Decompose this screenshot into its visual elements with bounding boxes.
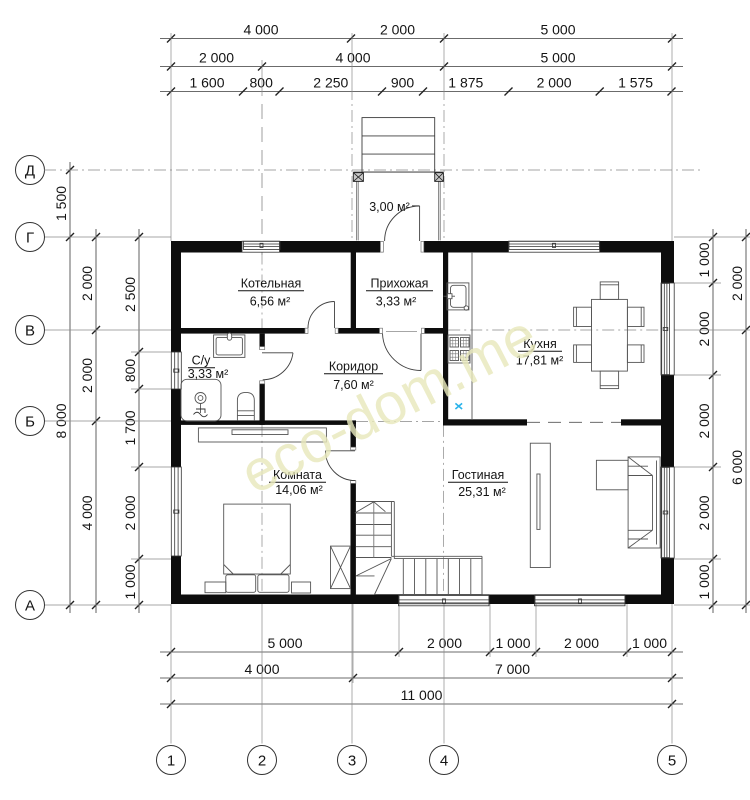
svg-text:1 000: 1 000: [696, 564, 712, 599]
svg-text:1 000: 1 000: [495, 635, 530, 651]
svg-text:2 000: 2 000: [564, 635, 599, 651]
svg-text:1 500: 1 500: [53, 186, 69, 221]
svg-text:Г: Г: [26, 230, 34, 247]
svg-text:1 000: 1 000: [122, 564, 138, 599]
svg-text:1 600: 1 600: [189, 75, 224, 91]
svg-text:С/у: С/у: [192, 354, 212, 368]
svg-text:2 000: 2 000: [696, 403, 712, 438]
svg-text:А: А: [25, 598, 35, 615]
svg-text:3,00 м²: 3,00 м²: [369, 200, 410, 214]
svg-text:4: 4: [440, 753, 448, 770]
svg-text:2 000: 2 000: [696, 311, 712, 346]
svg-text:2: 2: [258, 753, 266, 770]
svg-text:3: 3: [348, 753, 356, 770]
svg-text:1: 1: [167, 753, 175, 770]
svg-text:5 000: 5 000: [267, 635, 302, 651]
svg-text:1 875: 1 875: [448, 75, 483, 91]
svg-text:2 000: 2 000: [199, 50, 234, 66]
svg-text:2 000: 2 000: [729, 266, 745, 301]
svg-text:7 000: 7 000: [495, 661, 530, 677]
svg-text:800: 800: [122, 359, 138, 383]
svg-text:5 000: 5 000: [540, 50, 575, 66]
svg-text:4 000: 4 000: [335, 50, 370, 66]
svg-text:2 250: 2 250: [313, 75, 348, 91]
svg-text:2 500: 2 500: [122, 277, 138, 312]
svg-text:2 000: 2 000: [427, 635, 462, 651]
svg-text:2 000: 2 000: [380, 22, 415, 38]
svg-text:Прихожая: Прихожая: [371, 277, 429, 291]
svg-text:1 000: 1 000: [632, 635, 667, 651]
svg-text:Гостиная: Гостиная: [452, 468, 504, 482]
svg-text:1 000: 1 000: [696, 242, 712, 277]
svg-text:800: 800: [250, 75, 274, 91]
svg-text:6,56 м²: 6,56 м²: [250, 295, 291, 309]
svg-text:5: 5: [668, 753, 676, 770]
svg-text:5 000: 5 000: [540, 22, 575, 38]
svg-text:11 000: 11 000: [401, 687, 443, 703]
svg-text:4 000: 4 000: [79, 495, 95, 530]
svg-text:3,33 м²: 3,33 м²: [376, 295, 417, 309]
svg-text:Коридор: Коридор: [329, 360, 378, 374]
svg-text:В: В: [25, 323, 35, 340]
svg-text:2 000: 2 000: [696, 495, 712, 530]
svg-text:1 575: 1 575: [618, 75, 653, 91]
svg-text:2 000: 2 000: [79, 266, 95, 301]
svg-text:2 000: 2 000: [537, 75, 572, 91]
svg-text:Котельная: Котельная: [241, 277, 302, 291]
svg-text:900: 900: [391, 75, 415, 91]
svg-text:6 000: 6 000: [729, 450, 745, 485]
svg-text:4 000: 4 000: [243, 22, 278, 38]
svg-text:2 000: 2 000: [122, 495, 138, 530]
svg-text:3,33 м²: 3,33 м²: [188, 367, 229, 381]
svg-text:Б: Б: [25, 414, 35, 431]
svg-text:2 000: 2 000: [79, 358, 95, 393]
svg-text:25,31 м²: 25,31 м²: [458, 485, 506, 499]
svg-text:Д: Д: [25, 163, 35, 180]
svg-text:1 700: 1 700: [122, 410, 138, 445]
